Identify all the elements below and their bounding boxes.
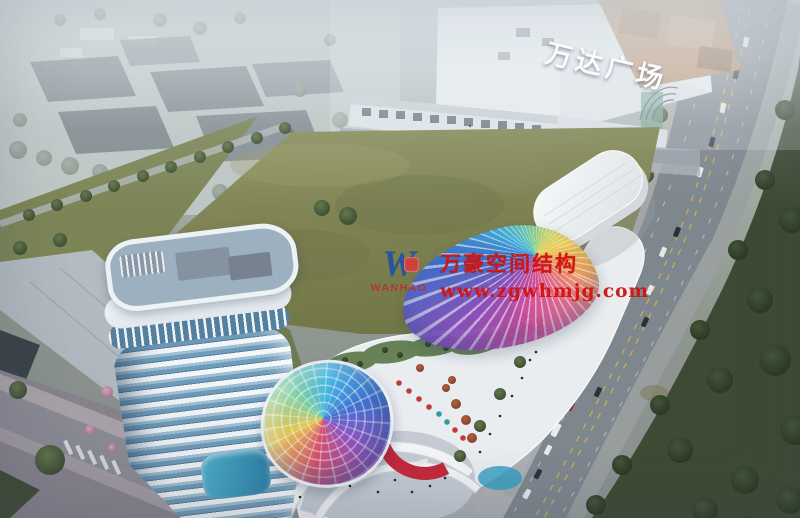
office-tower xyxy=(100,225,300,518)
watermark-logo: W WANHAO xyxy=(366,248,432,302)
aerial-rendering-scene: 万达广场 W WANHAO 万豪空间结构 www.zgwhmjg.com xyxy=(0,0,800,518)
logo-badge-icon xyxy=(404,257,419,272)
pool xyxy=(478,466,522,490)
roof-block xyxy=(228,252,273,281)
watermark-line2: www.zgwhmjg.com xyxy=(440,281,649,302)
roof-block xyxy=(175,247,232,281)
watermark-text: 万豪空间结构 www.zgwhmjg.com xyxy=(440,248,649,302)
wanhao-logo-w: W xyxy=(383,248,416,281)
roof-equipment-grid xyxy=(119,251,165,278)
tower-base-glass xyxy=(199,447,272,501)
watermark-line1: 万豪空间结构 xyxy=(440,248,649,278)
watermark: W WANHAO 万豪空间结构 www.zgwhmjg.com xyxy=(366,248,649,302)
